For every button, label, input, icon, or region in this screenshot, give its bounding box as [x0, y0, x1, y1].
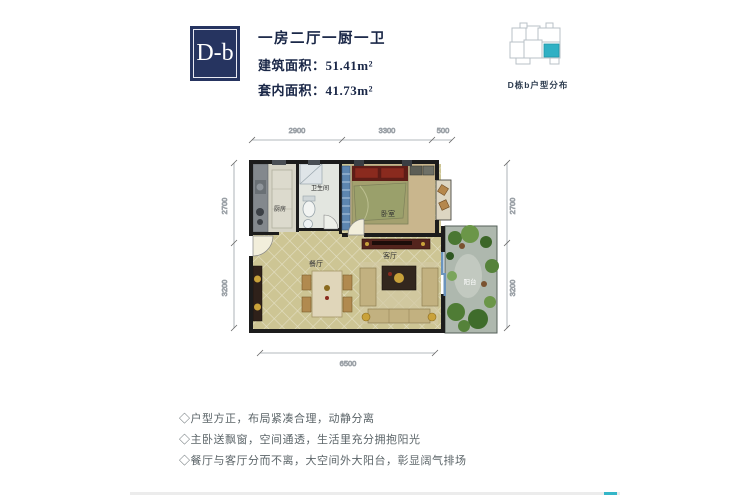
building-block [524, 40, 542, 58]
room-label-balcony: 阳台 [464, 277, 477, 286]
dim-top-1: 2900 [289, 126, 306, 135]
feature-item-2: ◇主卧送飘窗，空间通透，生活里充分拥抱阳光 [179, 430, 467, 451]
feature-item-1: ◇户型方正，布局紧凑合理，动静分离 [179, 409, 467, 430]
net-area-text: 套内面积：41.73m² [258, 80, 386, 99]
bathroom-sink [304, 220, 313, 229]
unit-code-badge: D-b [190, 26, 240, 81]
dimension-top: 2900 3300 500 [249, 126, 455, 143]
feature-item-3: ◇餐厅与客厅分而不离，大空间外大阳台，彰显阔气排场 [179, 451, 467, 472]
floor-lamp [428, 313, 436, 321]
badge-frame: D-b [193, 29, 237, 78]
locator-caption: D栋b户型分布 [494, 79, 582, 91]
room-label-dining: 餐厅 [309, 259, 323, 268]
building-block [546, 23, 553, 28]
sideboard [253, 266, 262, 321]
sofa-set [360, 262, 438, 324]
room-label-bedroom: 卧室 [381, 209, 395, 218]
feature-list: ◇户型方正，布局紧凑合理，动静分离 ◇主卧送飘窗，空间通透，生活里充分拥抱阳光 … [179, 409, 467, 472]
kitchen-counter [253, 164, 292, 232]
bed [352, 166, 408, 224]
unit-highlight [544, 44, 559, 57]
floor-lamp [362, 313, 370, 321]
dim-bottom: 6500 [340, 359, 357, 368]
dim-top-3: 500 [437, 126, 450, 135]
building-block [520, 23, 527, 28]
tv-console [362, 239, 430, 249]
dim-right-2: 3200 [508, 280, 517, 297]
dimension-right: 2700 3200 [504, 160, 517, 331]
toilet [303, 196, 315, 217]
dim-left-1: 2700 [220, 198, 229, 215]
room-label-living: 客厅 [383, 251, 397, 260]
room-label-kitchen: 厨房 [274, 205, 286, 213]
balcony-stone-path [454, 254, 482, 298]
dim-right-1: 2700 [508, 198, 517, 215]
bay-window [436, 180, 451, 220]
building-block [550, 58, 559, 64]
dimension-left: 2700 3200 [220, 160, 237, 331]
floorplan-page: D-b 一房二厅一厨一卫 建筑面积：51.41m² 套内面积：41.73m² [0, 0, 750, 500]
floor-plan: 2900 3300 500 2700 3200 2700 3200 6500 [212, 116, 522, 376]
layout-type-title: 一房二厅一厨一卫 [258, 27, 386, 48]
kitchen-island [272, 170, 292, 228]
carousel-track [130, 492, 620, 495]
carousel-indicator[interactable] [604, 492, 617, 495]
window-strip [342, 166, 350, 230]
armchair-left [360, 268, 376, 306]
dimension-bottom: 6500 [257, 350, 438, 368]
armchair-right [422, 268, 438, 306]
wardrobe [410, 166, 434, 175]
gross-area-text: 建筑面积：51.41m² [258, 55, 386, 74]
shower [300, 164, 322, 184]
building-block [516, 58, 530, 64]
unit-code-label: D-b [196, 40, 233, 67]
dim-left-2: 3200 [220, 280, 229, 297]
room-label-bathroom: 卫生间 [311, 184, 329, 192]
sofa-main [368, 309, 430, 323]
building-locator: D栋b户型分布 [494, 18, 582, 91]
building-footprint-diagram [494, 18, 582, 72]
dim-top-2: 3300 [379, 126, 396, 135]
